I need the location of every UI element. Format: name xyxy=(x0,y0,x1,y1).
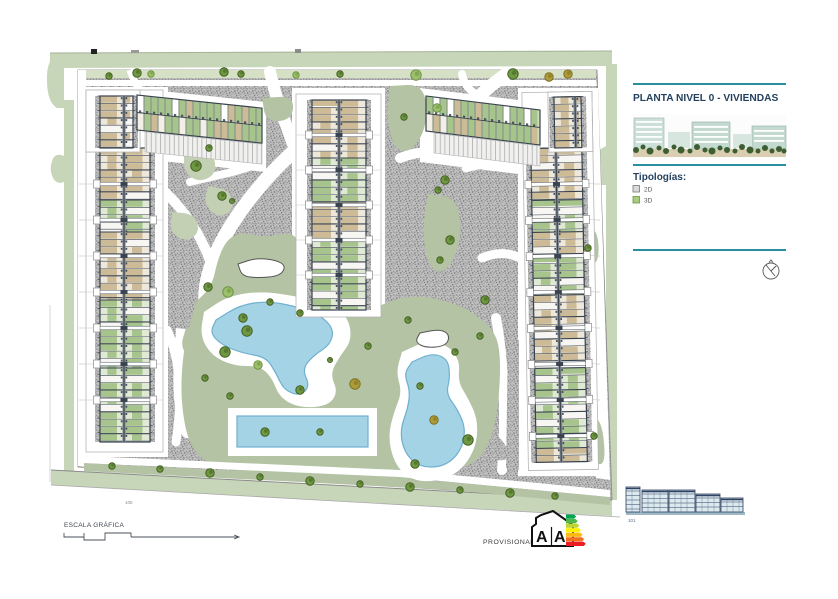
svg-text:A: A xyxy=(536,529,548,546)
svg-text:PROVISIONAL: PROVISIONAL xyxy=(483,539,535,546)
svg-text:A: A xyxy=(554,529,566,546)
svg-text:2D: 2D xyxy=(644,187,653,194)
svg-text:3D: 3D xyxy=(644,198,653,205)
svg-text:Tipologías:: Tipologías: xyxy=(633,172,686,183)
svg-text:101: 101 xyxy=(628,518,636,523)
svg-text:PLANTA NIVEL 0 - VIVIENDAS: PLANTA NIVEL 0 - VIVIENDAS xyxy=(633,93,778,104)
svg-text:105: 105 xyxy=(125,500,133,505)
svg-text:ESCALA GRÁFICA: ESCALA GRÁFICA xyxy=(64,520,125,529)
